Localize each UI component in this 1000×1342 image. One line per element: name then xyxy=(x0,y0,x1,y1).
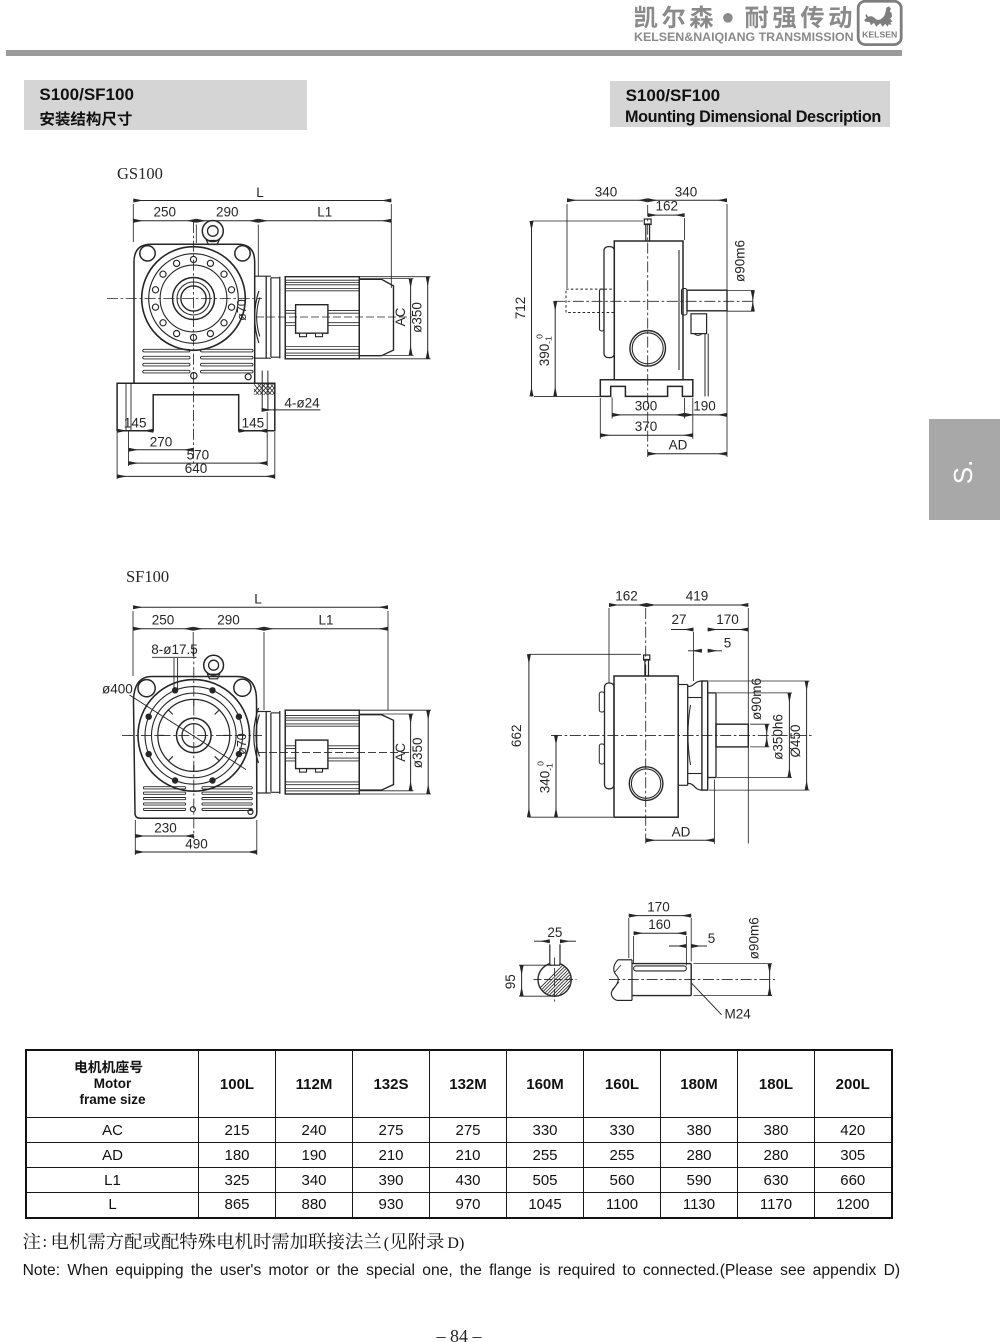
svg-text:SF100: SF100 xyxy=(126,567,169,586)
svg-text:25: 25 xyxy=(547,925,562,940)
svg-text:ø350h6: ø350h6 xyxy=(771,714,786,760)
svg-text:300: 300 xyxy=(635,398,658,413)
svg-text:162: 162 xyxy=(656,199,679,214)
svg-text:290: 290 xyxy=(216,204,239,219)
svg-text:190: 190 xyxy=(693,398,716,413)
svg-text:AD: AD xyxy=(672,824,691,839)
svg-text:170: 170 xyxy=(716,612,739,627)
svg-text:340: 340 xyxy=(595,184,618,199)
svg-text:ø70: ø70 xyxy=(235,299,249,321)
svg-text:L1: L1 xyxy=(317,204,332,219)
svg-text:L: L xyxy=(256,185,264,200)
svg-text:ø70: ø70 xyxy=(235,733,249,755)
svg-text:170: 170 xyxy=(647,900,670,915)
svg-text:-1: -1 xyxy=(544,763,554,771)
svg-text:GS100: GS100 xyxy=(117,164,163,183)
svg-text:ø90m6: ø90m6 xyxy=(747,917,762,959)
svg-text:ø90m6: ø90m6 xyxy=(749,678,764,720)
svg-text::: : xyxy=(43,1232,48,1251)
svg-text:AC: AC xyxy=(393,743,408,762)
svg-text:L1: L1 xyxy=(318,612,333,627)
svg-text:5: 5 xyxy=(724,635,732,650)
svg-text:390: 390 xyxy=(537,344,552,367)
svg-text:490: 490 xyxy=(185,837,208,852)
svg-text:712: 712 xyxy=(513,297,528,320)
svg-text:145: 145 xyxy=(242,415,265,430)
svg-text:95: 95 xyxy=(503,974,518,989)
svg-text:L: L xyxy=(254,592,262,607)
svg-text:640: 640 xyxy=(185,461,208,476)
svg-text:KELSEN: KELSEN xyxy=(862,30,897,40)
svg-text:-1: -1 xyxy=(544,336,554,344)
svg-text:AC: AC xyxy=(393,307,408,326)
svg-text:ø90m6: ø90m6 xyxy=(733,240,748,282)
svg-text:662: 662 xyxy=(509,725,524,748)
svg-text:(: ( xyxy=(384,1235,389,1252)
svg-text:ø400: ø400 xyxy=(102,682,133,697)
svg-text:250: 250 xyxy=(152,612,175,627)
svg-text:340: 340 xyxy=(538,771,553,794)
svg-text:ø350: ø350 xyxy=(410,738,425,769)
svg-text:4-ø24: 4-ø24 xyxy=(284,395,320,410)
svg-text:340: 340 xyxy=(675,184,698,199)
svg-text:8-ø17.5: 8-ø17.5 xyxy=(151,642,198,657)
svg-text:27: 27 xyxy=(671,612,686,627)
svg-text:145: 145 xyxy=(124,415,147,430)
svg-text:M24: M24 xyxy=(725,1007,752,1022)
svg-text:AD: AD xyxy=(669,437,688,452)
svg-text:270: 270 xyxy=(150,434,173,449)
svg-text:160: 160 xyxy=(648,917,671,932)
svg-text:250: 250 xyxy=(154,204,177,219)
svg-text:290: 290 xyxy=(217,612,240,627)
svg-text:419: 419 xyxy=(686,589,709,604)
svg-text:D): D) xyxy=(447,1235,464,1252)
svg-text:370: 370 xyxy=(635,419,658,434)
svg-text:5: 5 xyxy=(708,931,716,946)
svg-text:ø350: ø350 xyxy=(409,302,424,333)
svg-text:162: 162 xyxy=(615,589,638,604)
svg-text:230: 230 xyxy=(154,821,177,836)
svg-text:Ø450: Ø450 xyxy=(788,724,803,757)
